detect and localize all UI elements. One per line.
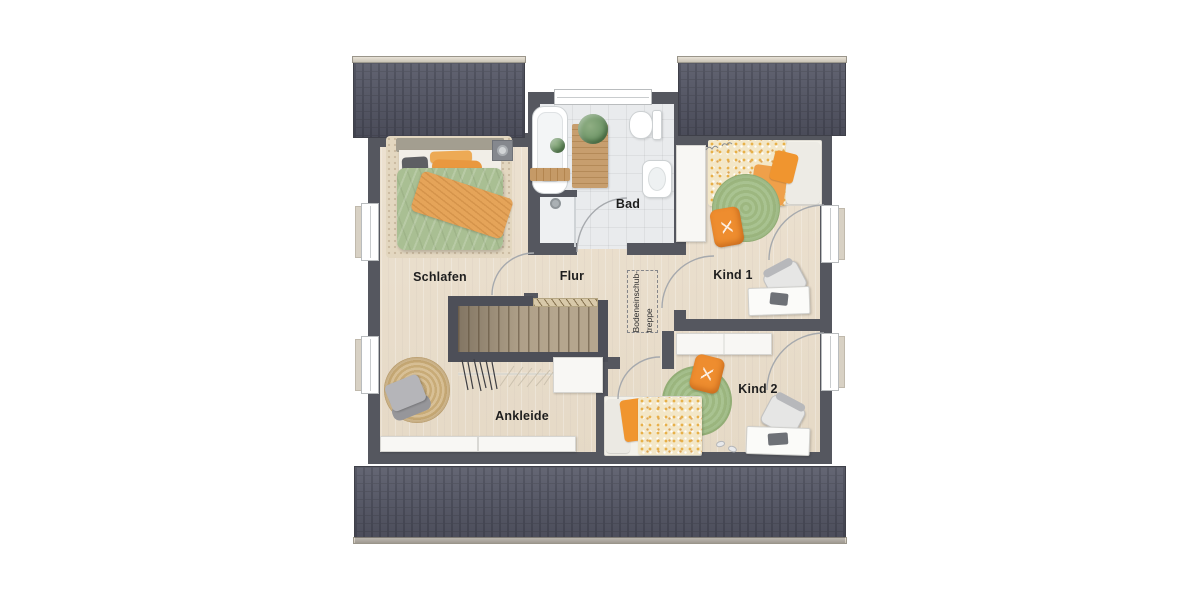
window-bad [554,89,652,105]
window-ankleide [361,336,379,394]
shower-fixture [550,198,561,209]
wall-kind1-door-stub [674,310,686,319]
wall-left [368,133,380,455]
wall-unit [492,140,513,161]
roof-shade [679,57,845,135]
wall-bath-bottom-right [627,243,686,255]
label-kind2: Kind 2 [738,382,777,396]
toilet-tank [652,110,662,140]
window-kind2 [821,333,839,391]
laptop-kind1 [769,292,788,306]
bath-caddy [530,168,570,181]
toilet-bowl [629,111,653,139]
dormer-roof-right [678,56,846,136]
wall-unit-dial [497,145,508,156]
stair-railing [533,298,598,307]
sink-basin [648,167,666,191]
dresser [553,357,603,393]
plant [578,114,608,144]
label-ankleide: Ankleide [495,409,549,423]
dormer-roof-left [353,56,525,138]
sideboard [380,436,576,452]
attic-stairs-box: Bodeneinschub- treppe [627,270,658,333]
bed-kind2-blanket [638,397,702,455]
eaves-roof-bottom [354,466,846,544]
label-schlafen: Schlafen [413,270,467,284]
plant-small [550,138,565,153]
stairwell-wall-top [448,296,533,306]
roof-shade [355,467,845,543]
staircase [458,306,598,352]
laptop-kind2 [768,432,789,445]
window-schlafen [361,203,379,261]
attic-stairs-label: Bodeneinschub- treppe [630,271,656,332]
wardrobe-kind2 [676,333,772,355]
label-kind1: Kind 1 [713,268,752,282]
label-bad: Bad [616,197,640,211]
shower-glass [574,197,576,247]
wall-kind1-kind2 [674,319,832,331]
label-flur: Flur [560,269,584,283]
wall-stub-kind2 [662,331,674,369]
window-kind1 [821,205,839,263]
floor-plan-upper-storey: Schlafen Bad Flur Kind 1 Kind 2 Ankleide… [0,0,1200,600]
roof-shade [354,57,524,137]
wardrobe-kind1 [676,145,706,242]
stairwell-wall-right [598,300,608,357]
wall-bath-bottom-left [528,243,577,255]
floor-cushion-kind1 [709,206,745,249]
